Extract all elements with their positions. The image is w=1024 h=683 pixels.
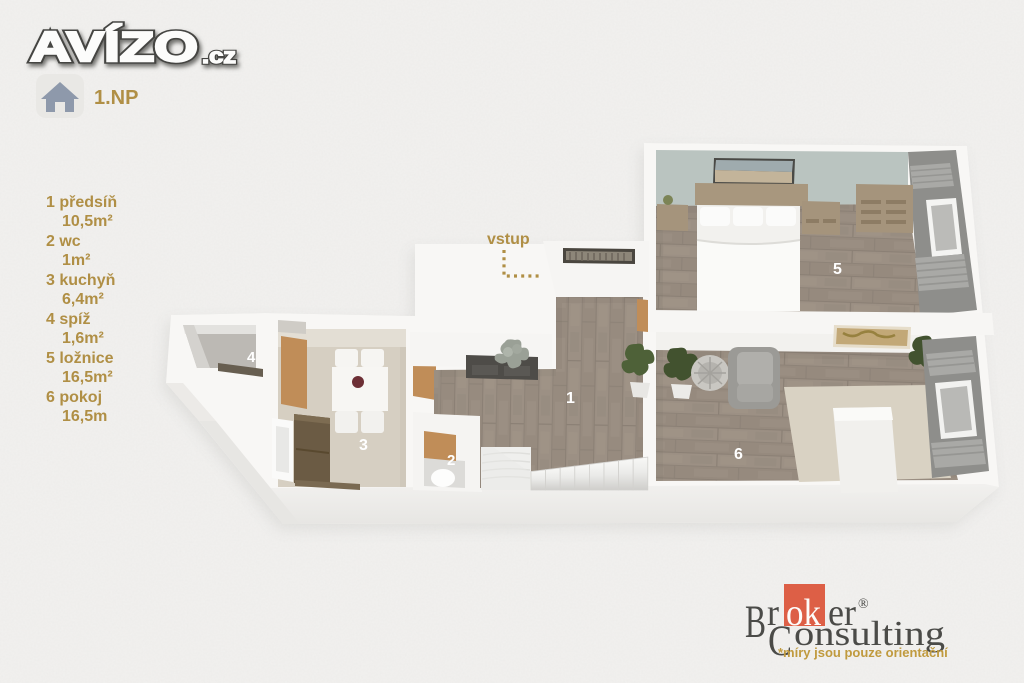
svg-text:5: 5 (833, 261, 842, 278)
svg-text:6 pokoj: 6 pokoj (46, 389, 102, 406)
svg-text:10,5m²: 10,5m² (62, 213, 113, 230)
svg-text:16,5m²: 16,5m² (62, 369, 113, 386)
svg-text:1.NP: 1.NP (94, 87, 138, 109)
svg-text:6: 6 (734, 446, 743, 463)
svg-text:2 wc: 2 wc (46, 233, 81, 250)
svg-text:2: 2 (447, 452, 455, 469)
svg-text:16,5m: 16,5m (62, 408, 107, 425)
svg-text:1 předsíň: 1 předsíň (46, 194, 117, 211)
svg-text:1: 1 (566, 390, 575, 407)
svg-text:4 spíž: 4 spíž (46, 311, 90, 328)
svg-text:6,4m²: 6,4m² (62, 291, 104, 308)
svg-text:5 ložnice: 5 ložnice (46, 350, 114, 367)
svg-text:.cz: .cz (202, 45, 236, 68)
svg-text:*míry jsou pouze orientační: *míry jsou pouze orientační (778, 645, 948, 660)
svg-text:®: ® (858, 597, 869, 612)
svg-text:4: 4 (247, 349, 256, 366)
svg-text:3 kuchyň: 3 kuchyň (46, 272, 115, 289)
svg-text:3: 3 (359, 437, 368, 454)
svg-text:1,6m²: 1,6m² (62, 330, 104, 347)
svg-text:B: B (745, 596, 766, 648)
svg-text:vstup: vstup (487, 231, 530, 248)
svg-text:1m²: 1m² (62, 252, 90, 269)
svg-text:AVÍZO: AVÍZO (30, 23, 198, 70)
